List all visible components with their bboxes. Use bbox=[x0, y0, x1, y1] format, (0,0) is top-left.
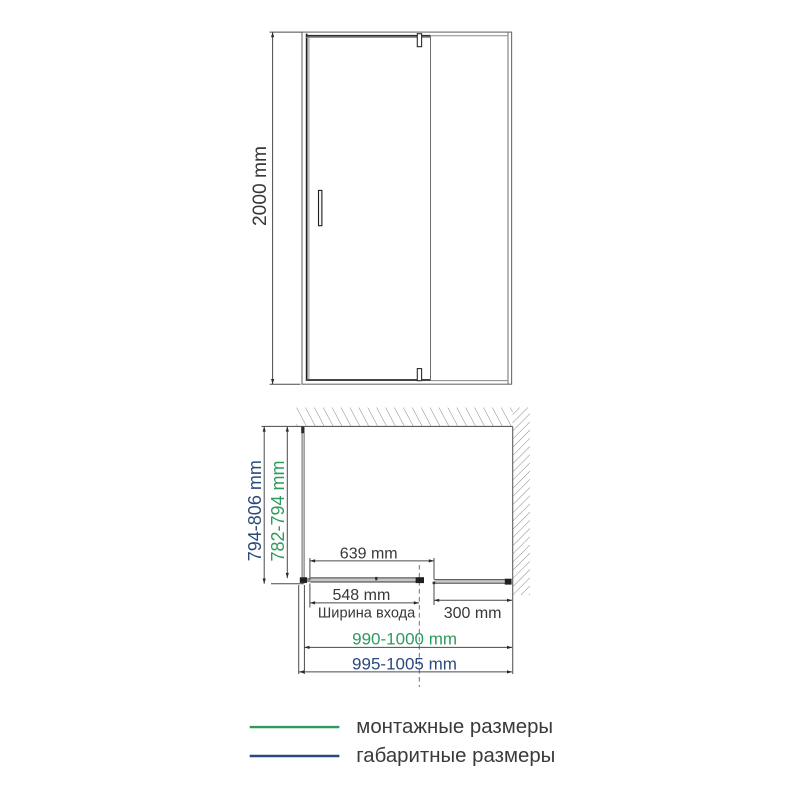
svg-text:300 mm: 300 mm bbox=[444, 605, 502, 622]
svg-text:2000 mm: 2000 mm bbox=[250, 146, 271, 226]
svg-text:782-794 mm: 782-794 mm bbox=[268, 460, 288, 561]
svg-text:639 mm: 639 mm bbox=[340, 545, 398, 562]
svg-text:Ширина входа: Ширина входа bbox=[318, 606, 416, 622]
svg-text:794-806 mm: 794-806 mm bbox=[245, 460, 265, 561]
svg-text:990-1000 mm: 990-1000 mm bbox=[352, 630, 457, 649]
svg-text:995-1005 mm: 995-1005 mm bbox=[352, 654, 457, 673]
svg-text:548 mm: 548 mm bbox=[333, 587, 391, 604]
svg-text:габаритные размеры: габаритные размеры bbox=[356, 745, 555, 767]
svg-text:монтажные размеры: монтажные размеры bbox=[356, 716, 553, 738]
